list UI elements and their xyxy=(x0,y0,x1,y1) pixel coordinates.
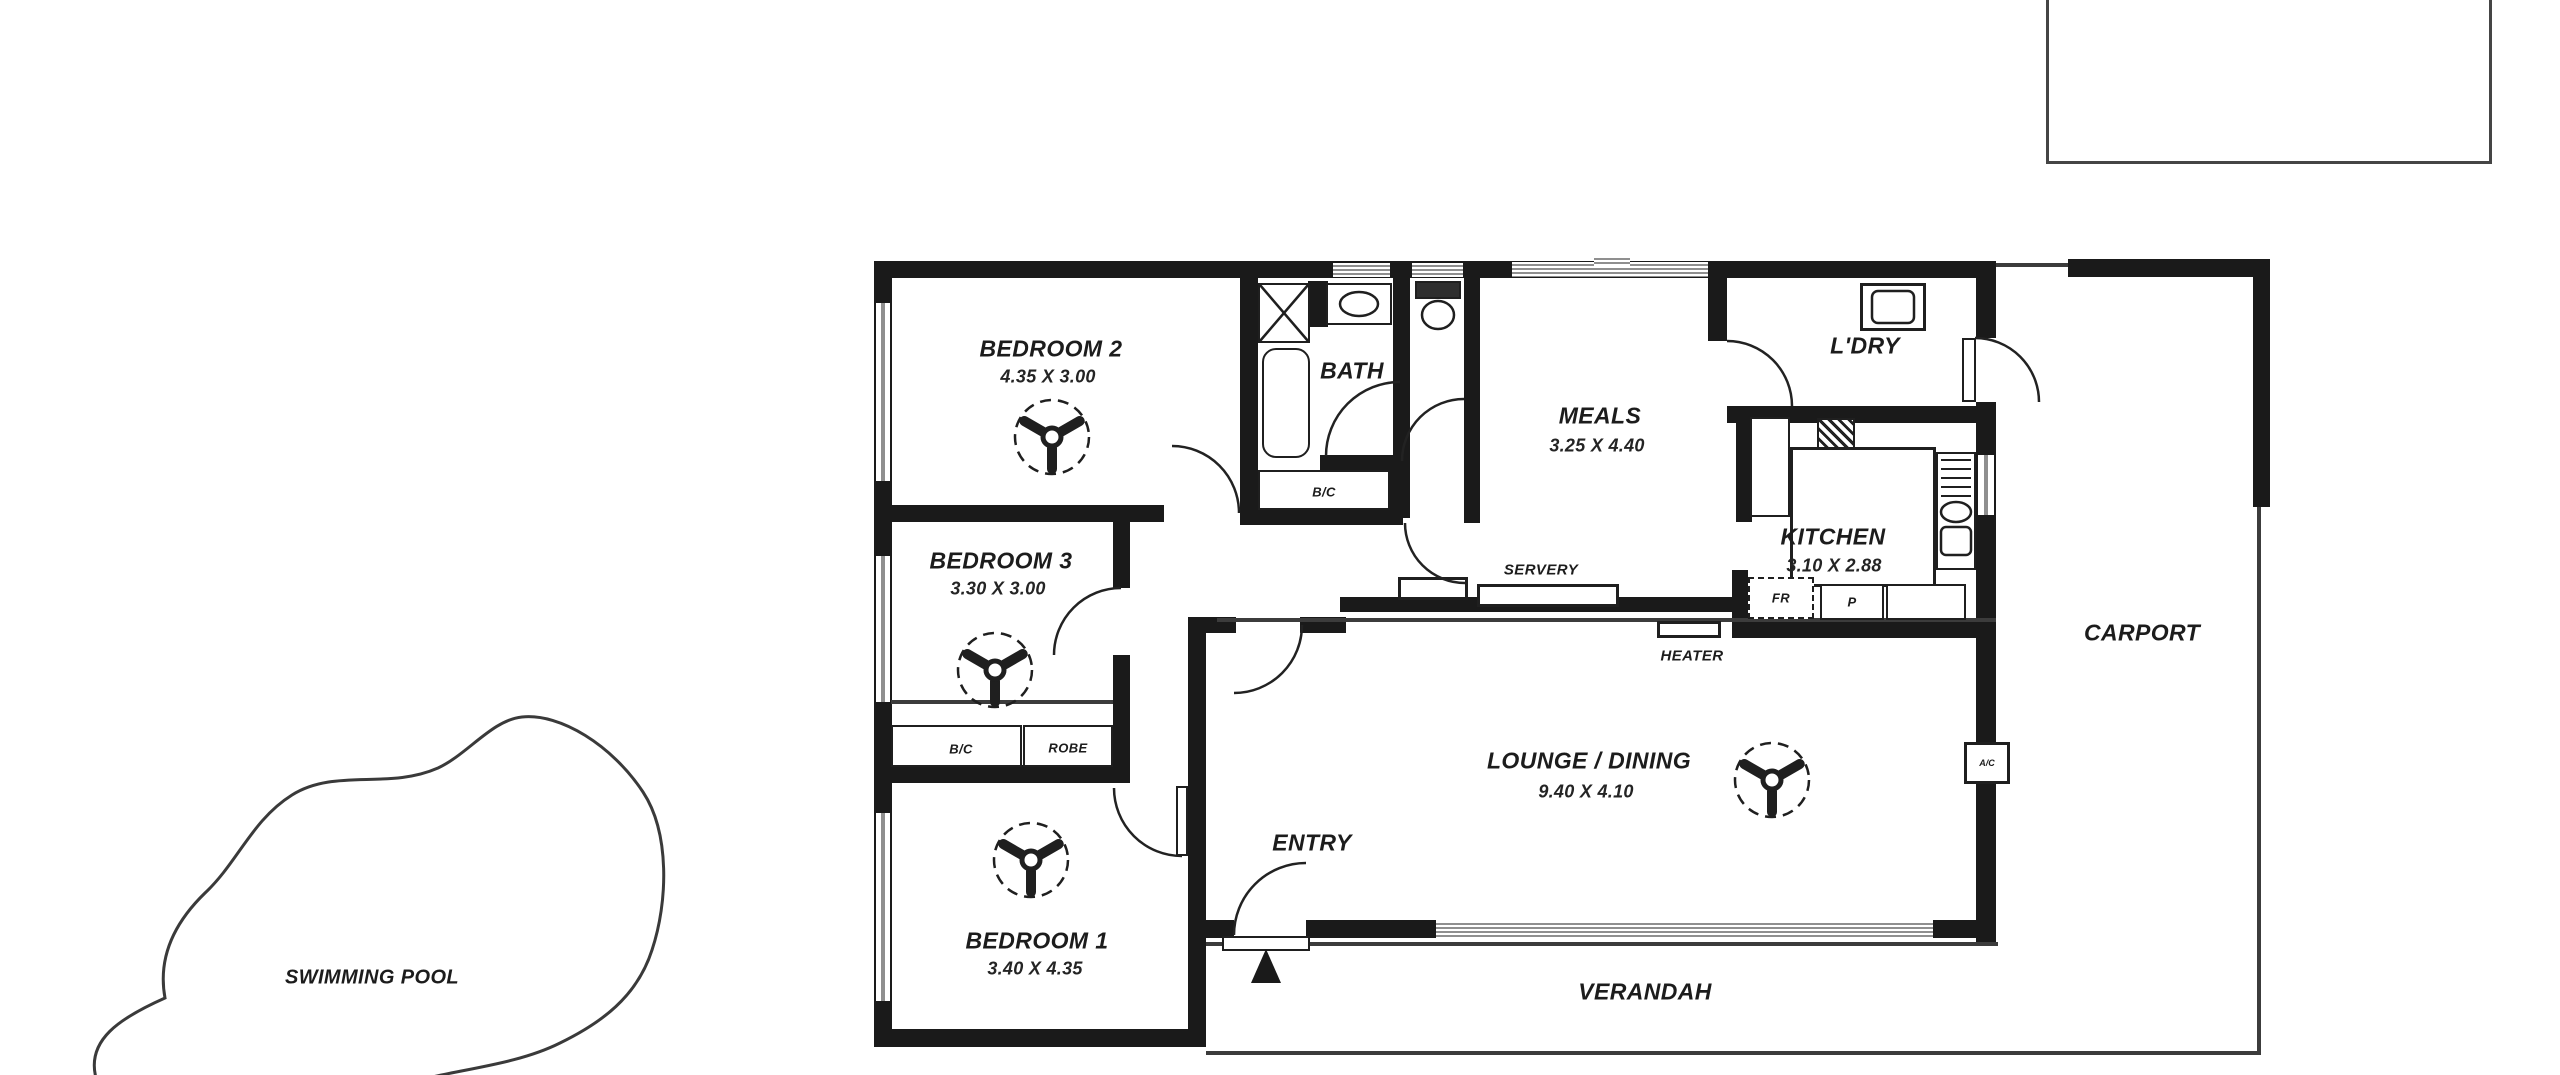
sliding-door-window xyxy=(1436,921,1933,937)
wall xyxy=(1113,655,1130,783)
heater-label: HEATER xyxy=(1661,648,1724,665)
kitchen-bench xyxy=(1750,417,1790,517)
entry-arrow-icon xyxy=(1251,949,1281,983)
kitchen-sink-unit xyxy=(1936,452,1976,570)
door-swing-arc xyxy=(1402,399,1464,461)
bedroom1-door-leaf xyxy=(1176,786,1188,856)
verandah-label: VERANDAH xyxy=(1578,979,1712,1006)
bc-bath-label: B/C xyxy=(1312,485,1336,500)
kitchen-bench-south xyxy=(1886,584,1966,620)
door-swing-arc xyxy=(1326,382,1400,456)
cooktop xyxy=(1817,418,1855,449)
wall xyxy=(1708,261,1727,341)
front-door-leaf xyxy=(1222,936,1310,951)
top-right-box xyxy=(2046,0,2492,164)
bathtub xyxy=(1262,348,1310,458)
window xyxy=(1412,263,1463,277)
robe-label: ROBE xyxy=(1048,741,1087,756)
kitchen-label: KITCHEN xyxy=(1780,524,1885,551)
carport-label: CARPORT xyxy=(2084,620,2200,647)
door-swing-arc xyxy=(1405,523,1465,583)
kitchen-dims: 3.10 X 2.88 xyxy=(1786,556,1881,577)
bath-label: BATH xyxy=(1320,358,1384,385)
bc-bed3-label: B/C xyxy=(949,742,973,757)
bedroom1-dims: 3.40 X 4.35 xyxy=(987,959,1082,980)
bedroom2-label: BEDROOM 2 xyxy=(980,336,1123,363)
servery-label: SERVERY xyxy=(1504,562,1578,579)
servery-bench-left xyxy=(1398,577,1468,600)
laundry-door-leaf xyxy=(1962,338,1976,402)
window xyxy=(1333,263,1390,277)
ceiling-fan-icon xyxy=(1015,400,1089,474)
ceiling-fan-icon xyxy=(994,823,1068,897)
swimming-pool-outline xyxy=(94,717,663,1075)
carport-wall xyxy=(2068,259,2270,277)
meals-label: MEALS xyxy=(1559,403,1642,430)
wall xyxy=(1308,281,1328,327)
ceiling-fan-icon xyxy=(1735,743,1809,817)
door-swing-arc xyxy=(1975,338,2039,402)
door-swing-arc xyxy=(1234,625,1302,693)
wall xyxy=(1240,508,1403,525)
heater-unit xyxy=(1657,621,1721,638)
door-swing-arc xyxy=(1054,588,1121,655)
window xyxy=(1978,455,1994,515)
servery-bench xyxy=(1477,584,1619,607)
toilet-bowl-icon xyxy=(1422,301,1454,329)
laundry-label: L'DRY xyxy=(1830,333,1900,360)
lounge-dining-label: LOUNGE / DINING xyxy=(1487,748,1691,775)
ceiling-fan-icon xyxy=(958,633,1032,707)
wall xyxy=(1393,261,1410,462)
meals-dims: 3.25 X 4.40 xyxy=(1549,436,1644,457)
door-swing-arc xyxy=(1114,788,1182,856)
pantry-label: P xyxy=(1847,595,1856,610)
air-conditioner-label: A/C xyxy=(1979,758,1995,768)
fridge-label: FR xyxy=(1772,591,1790,606)
wall xyxy=(1320,455,1392,470)
verandah-edge-line xyxy=(1206,1051,2261,1055)
wall xyxy=(874,765,1130,783)
toilet-cistern xyxy=(1415,281,1461,299)
wall xyxy=(1732,620,1996,638)
window xyxy=(876,813,890,1001)
bedroom1-label: BEDROOM 1 xyxy=(966,928,1109,955)
wall xyxy=(874,505,1164,522)
wall xyxy=(1240,261,1258,523)
window xyxy=(876,303,890,481)
wall xyxy=(1188,617,1206,1047)
entry-label: ENTRY xyxy=(1272,830,1352,857)
bedroom2-dims: 4.35 X 3.00 xyxy=(1000,367,1095,388)
door-swing-arc xyxy=(1727,341,1792,406)
window xyxy=(876,556,890,702)
carport-wall xyxy=(2253,259,2270,507)
bedroom3-dims: 3.30 X 3.00 xyxy=(950,579,1045,600)
linen-cupboard xyxy=(1258,283,1310,343)
laundry-trough xyxy=(1860,283,1926,331)
carport-edge-line xyxy=(2257,507,2261,1055)
floor-plan: BEDROOM 2 4.35 X 3.00 BATH MEALS 3.25 X … xyxy=(0,0,2560,1075)
door-swing-arc xyxy=(1234,863,1306,935)
verandah-north-line xyxy=(1206,942,1998,946)
door-swing-arc xyxy=(1172,446,1239,513)
wall xyxy=(1390,455,1407,508)
wall xyxy=(1976,261,1996,338)
vanity-basin-counter xyxy=(1326,283,1392,325)
wall xyxy=(1113,522,1130,588)
wall xyxy=(1464,261,1480,523)
carport-edge-line xyxy=(1996,263,2068,267)
lounge-dining-dims: 9.40 X 4.10 xyxy=(1538,782,1633,803)
closet-line xyxy=(891,700,1113,704)
swimming-pool-label: SWIMMING POOL xyxy=(285,967,459,990)
window xyxy=(1594,256,1630,266)
wall xyxy=(1306,920,1436,938)
wall xyxy=(1933,920,1978,938)
wall xyxy=(874,1029,1206,1047)
bedroom3-label: BEDROOM 3 xyxy=(930,548,1073,575)
